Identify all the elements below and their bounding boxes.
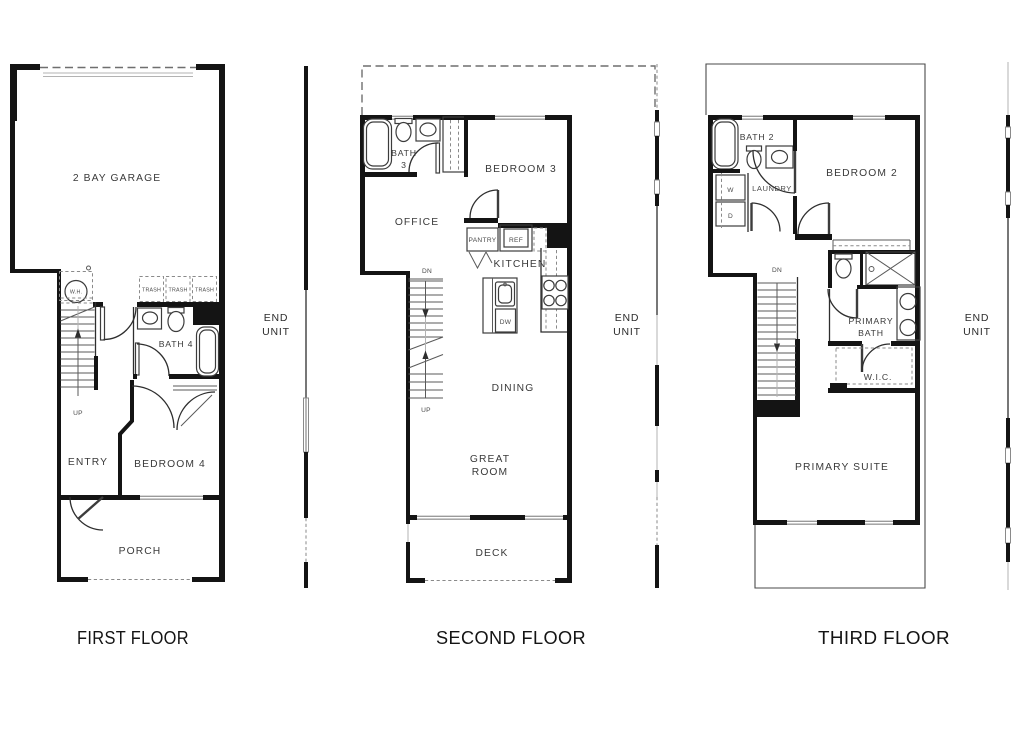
room-label-kitchen: KITCHEN [494,259,547,270]
dw-label: DW [500,319,512,326]
room-label-bath2: BATH 2 [740,132,775,142]
room-label-bath3: BATH [391,148,417,158]
water-heater-icon [60,266,93,303]
trash-label: TRASH [195,288,214,294]
door-icon [132,386,174,428]
stairs-down-icon [753,277,800,417]
bathtub-icon [364,119,392,169]
room-label-room: ROOM [472,467,508,478]
dryer-label: D [728,213,733,220]
down-label: DN [772,267,782,274]
room-label-garage: 2 BAY GARAGE [73,173,161,184]
cooktop-icon [542,276,568,309]
room-label-bedroom4: BEDROOM 4 [134,459,206,470]
party-wall-line-2 [655,64,660,588]
washer-label: W [727,187,734,194]
first-floor-plan: W.H. TRASH TRASH TRASH UP [10,64,225,582]
room-label-primary-bath2: BATH [858,328,884,338]
caption-first-floor: FIRST FLOOR [77,627,189,648]
ref-label: REF [509,237,523,244]
room-label-primary-suite: PRIMARY SUITE [795,462,889,473]
up-label: UP [73,410,83,417]
room-label-wic: W.I.C. [864,372,892,382]
door-icon [470,190,498,218]
room-label-bath3-num: 3 [401,160,407,170]
party-wall-line-3 [1006,62,1011,590]
third-floor-plan: BATH 2 BEDROOM 2 W D LAUNDRY DN PRIMARY … [706,64,925,588]
end-unit-label: END [965,312,990,324]
room-label-laundry: LAUNDRY [752,184,792,193]
window-icon [140,496,203,499]
bathtub-icon [712,119,738,169]
end-unit-label: UNIT [963,326,991,338]
caption-second-floor: SECOND FLOOR [436,627,586,648]
roof-outline [706,64,925,588]
room-label-deck: DECK [475,548,508,559]
pantry-label: PANTRY [469,237,497,244]
bifold-door-icon [469,252,492,268]
caption-third-floor: THIRD FLOOR [818,627,950,648]
bathtub-icon [197,327,219,376]
stairs-icon [409,279,444,398]
toilet-icon [168,308,184,332]
door-icon [798,203,829,234]
roof-outline-dashed [362,66,655,115]
sink-icon [416,119,440,141]
floorplan-canvas: W.H. TRASH TRASH TRASH UP [0,0,1020,737]
party-wall-line-1 [304,66,309,588]
room-label-bedroom2: BEDROOM 2 [826,168,898,179]
room-label-dining: DINING [492,383,535,394]
room-label-bath4: BATH 4 [159,339,194,349]
room-label-bedroom3: BEDROOM 3 [485,164,557,175]
toilet-icon [395,119,412,142]
closet-icon [443,117,466,172]
sink-icon [766,146,793,168]
room-label-porch: PORCH [119,546,162,557]
stairs-up-icon [61,298,99,396]
entry-door-icon [70,497,103,530]
room-label-great: GREAT [470,454,510,465]
trash-label: TRASH [169,288,188,294]
closet-icon [173,386,217,430]
down-label: DN [422,268,432,275]
floorplan-sheet: W.H. TRASH TRASH TRASH UP [0,0,1020,737]
end-unit-label: UNIT [262,326,290,338]
trash-label: TRASH [142,288,161,294]
door-icon [752,203,781,232]
sink-icon [138,308,162,329]
door-icon [828,289,857,318]
second-floor-plan: DN UP BATH 3 BEDROOM 3 OFFICE KITCHEN PA… [360,66,655,583]
end-unit-label: UNIT [613,326,641,338]
closet-icon [833,240,910,252]
end-unit-label: END [615,312,640,324]
end-unit-label: END [264,312,289,324]
room-label-office: OFFICE [395,217,439,228]
door-icon [101,307,137,340]
floor-captions: FIRST FLOOR SECOND FLOOR THIRD FLOOR [77,627,950,648]
up-label: UP [421,407,431,414]
shower-icon [866,252,915,285]
room-label-primary-bath: PRIMARY [848,316,893,326]
room-label-entry: ENTRY [68,457,108,468]
toilet-icon [835,254,852,278]
water-heater-label: W.H. [70,290,82,296]
